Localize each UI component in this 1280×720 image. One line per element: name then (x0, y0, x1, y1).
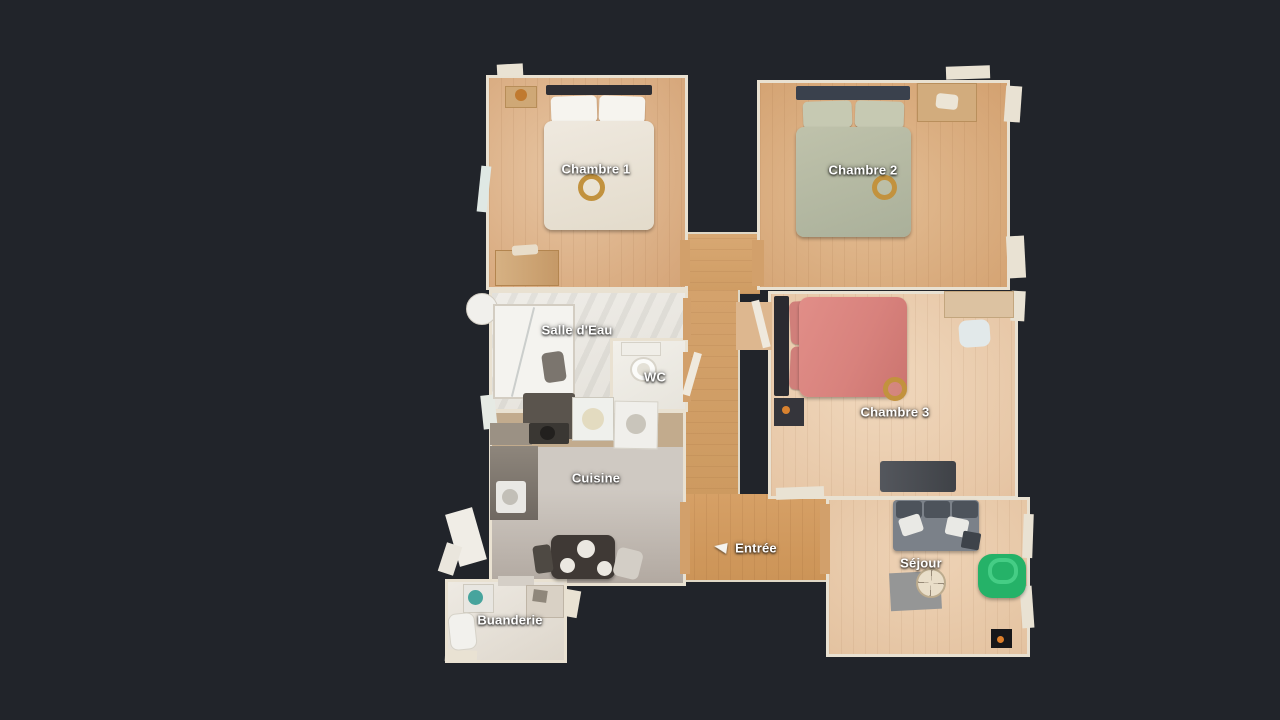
doorway-entree-sejour (820, 504, 830, 574)
dresser (495, 250, 559, 286)
doorway-salledeau-hall (683, 298, 691, 340)
decor-ring (883, 377, 907, 401)
toilet-tank (621, 342, 661, 356)
room-label-chambre-2: Chambre 2 (829, 163, 898, 178)
fire-glow (997, 636, 1004, 643)
tv-bench (880, 461, 956, 492)
stove-pot (540, 426, 555, 440)
bean-bag-highlight (988, 558, 1018, 584)
room-label-cuisine: Cuisine (572, 471, 620, 486)
bed-pillow (599, 95, 646, 124)
wall-fragment (776, 486, 824, 500)
wall-fragment (1006, 236, 1026, 279)
room-label-salle-deau: Salle d'Eau (541, 323, 612, 338)
wall-fragment (946, 65, 990, 80)
wall-fragment (497, 63, 524, 76)
plate (597, 561, 612, 576)
room-label-entree: Entrée (735, 541, 777, 556)
hallway-top-floor[interactable] (684, 232, 760, 294)
bed-headboard-chambre3 (774, 296, 789, 396)
decor-ring (872, 175, 897, 200)
candle (782, 406, 790, 414)
dresser-item (512, 244, 539, 256)
bed-pillow (803, 100, 853, 129)
sofa-back-cushion (924, 501, 950, 518)
laundry-sink (447, 612, 478, 652)
sofa-side-table (961, 531, 982, 551)
entree-floor[interactable] (682, 494, 828, 582)
bed-headboard-chambre1 (546, 85, 652, 95)
hallway-floor[interactable] (684, 290, 740, 500)
sink-bowl (502, 489, 518, 505)
plate (560, 558, 575, 573)
wall-fragment (562, 589, 581, 618)
decor-ring (578, 174, 605, 201)
plate (577, 540, 595, 558)
bath-mat (541, 351, 567, 384)
room-label-chambre-1: Chambre 1 (562, 162, 631, 177)
dining-chair (532, 544, 554, 574)
doorway-chambre1-hall (680, 240, 690, 286)
sofa-back-cushion (952, 501, 978, 518)
desk-item (935, 93, 958, 110)
coffee-table (916, 568, 946, 598)
wall-fragment (1022, 514, 1034, 558)
doorway-chambre2-hall (752, 240, 764, 286)
washer-drum (626, 414, 646, 434)
room-label-wc: WC (644, 370, 666, 385)
bed-headboard-chambre2 (796, 86, 910, 100)
room-label-sejour: Séjour (900, 556, 942, 571)
lamp (515, 89, 527, 101)
desk-chair (958, 319, 991, 348)
shower-tray (493, 304, 575, 399)
room-label-chambre-3: Chambre 3 (861, 405, 930, 420)
room-label-buanderie: Buanderie (477, 613, 542, 628)
bed-pillow (551, 95, 598, 124)
kitchen-cabinet (490, 423, 532, 445)
sink-bowl (582, 408, 604, 430)
washer-drum (468, 590, 483, 605)
wall-fragment (1004, 85, 1022, 122)
desk (944, 291, 1014, 318)
door-swing-icon (713, 541, 727, 554)
dollhouse-floorplan-view: Chambre 1 Chambre 2 Salle d'Eau WC Chamb… (0, 0, 1280, 720)
wall-fragment (445, 649, 478, 663)
bed-pillow (855, 100, 905, 129)
doorway-cuisine-entree (680, 502, 690, 574)
laundry-item (532, 589, 548, 603)
